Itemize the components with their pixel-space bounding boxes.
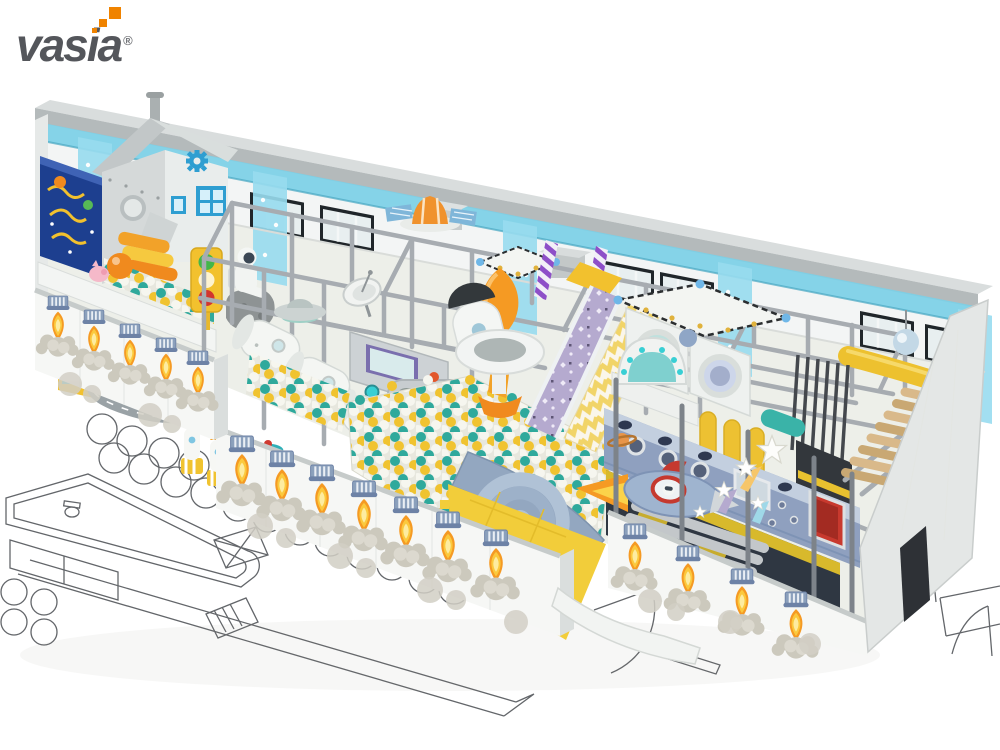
gear-icon <box>186 150 208 172</box>
logo-dot-square-small-icon <box>92 28 97 33</box>
registered-trademark: ® <box>123 33 133 48</box>
brand-logo: vasia® <box>16 4 236 74</box>
giant-orange-ball <box>107 253 133 279</box>
logo-dot-square-large-icon <box>109 7 121 19</box>
playground-render <box>0 0 1000 750</box>
logo-dot-square-mid-icon <box>99 19 107 27</box>
brand-logo-word: vasia® <box>16 18 133 72</box>
product-render-page: vasia® <box>0 0 1000 750</box>
